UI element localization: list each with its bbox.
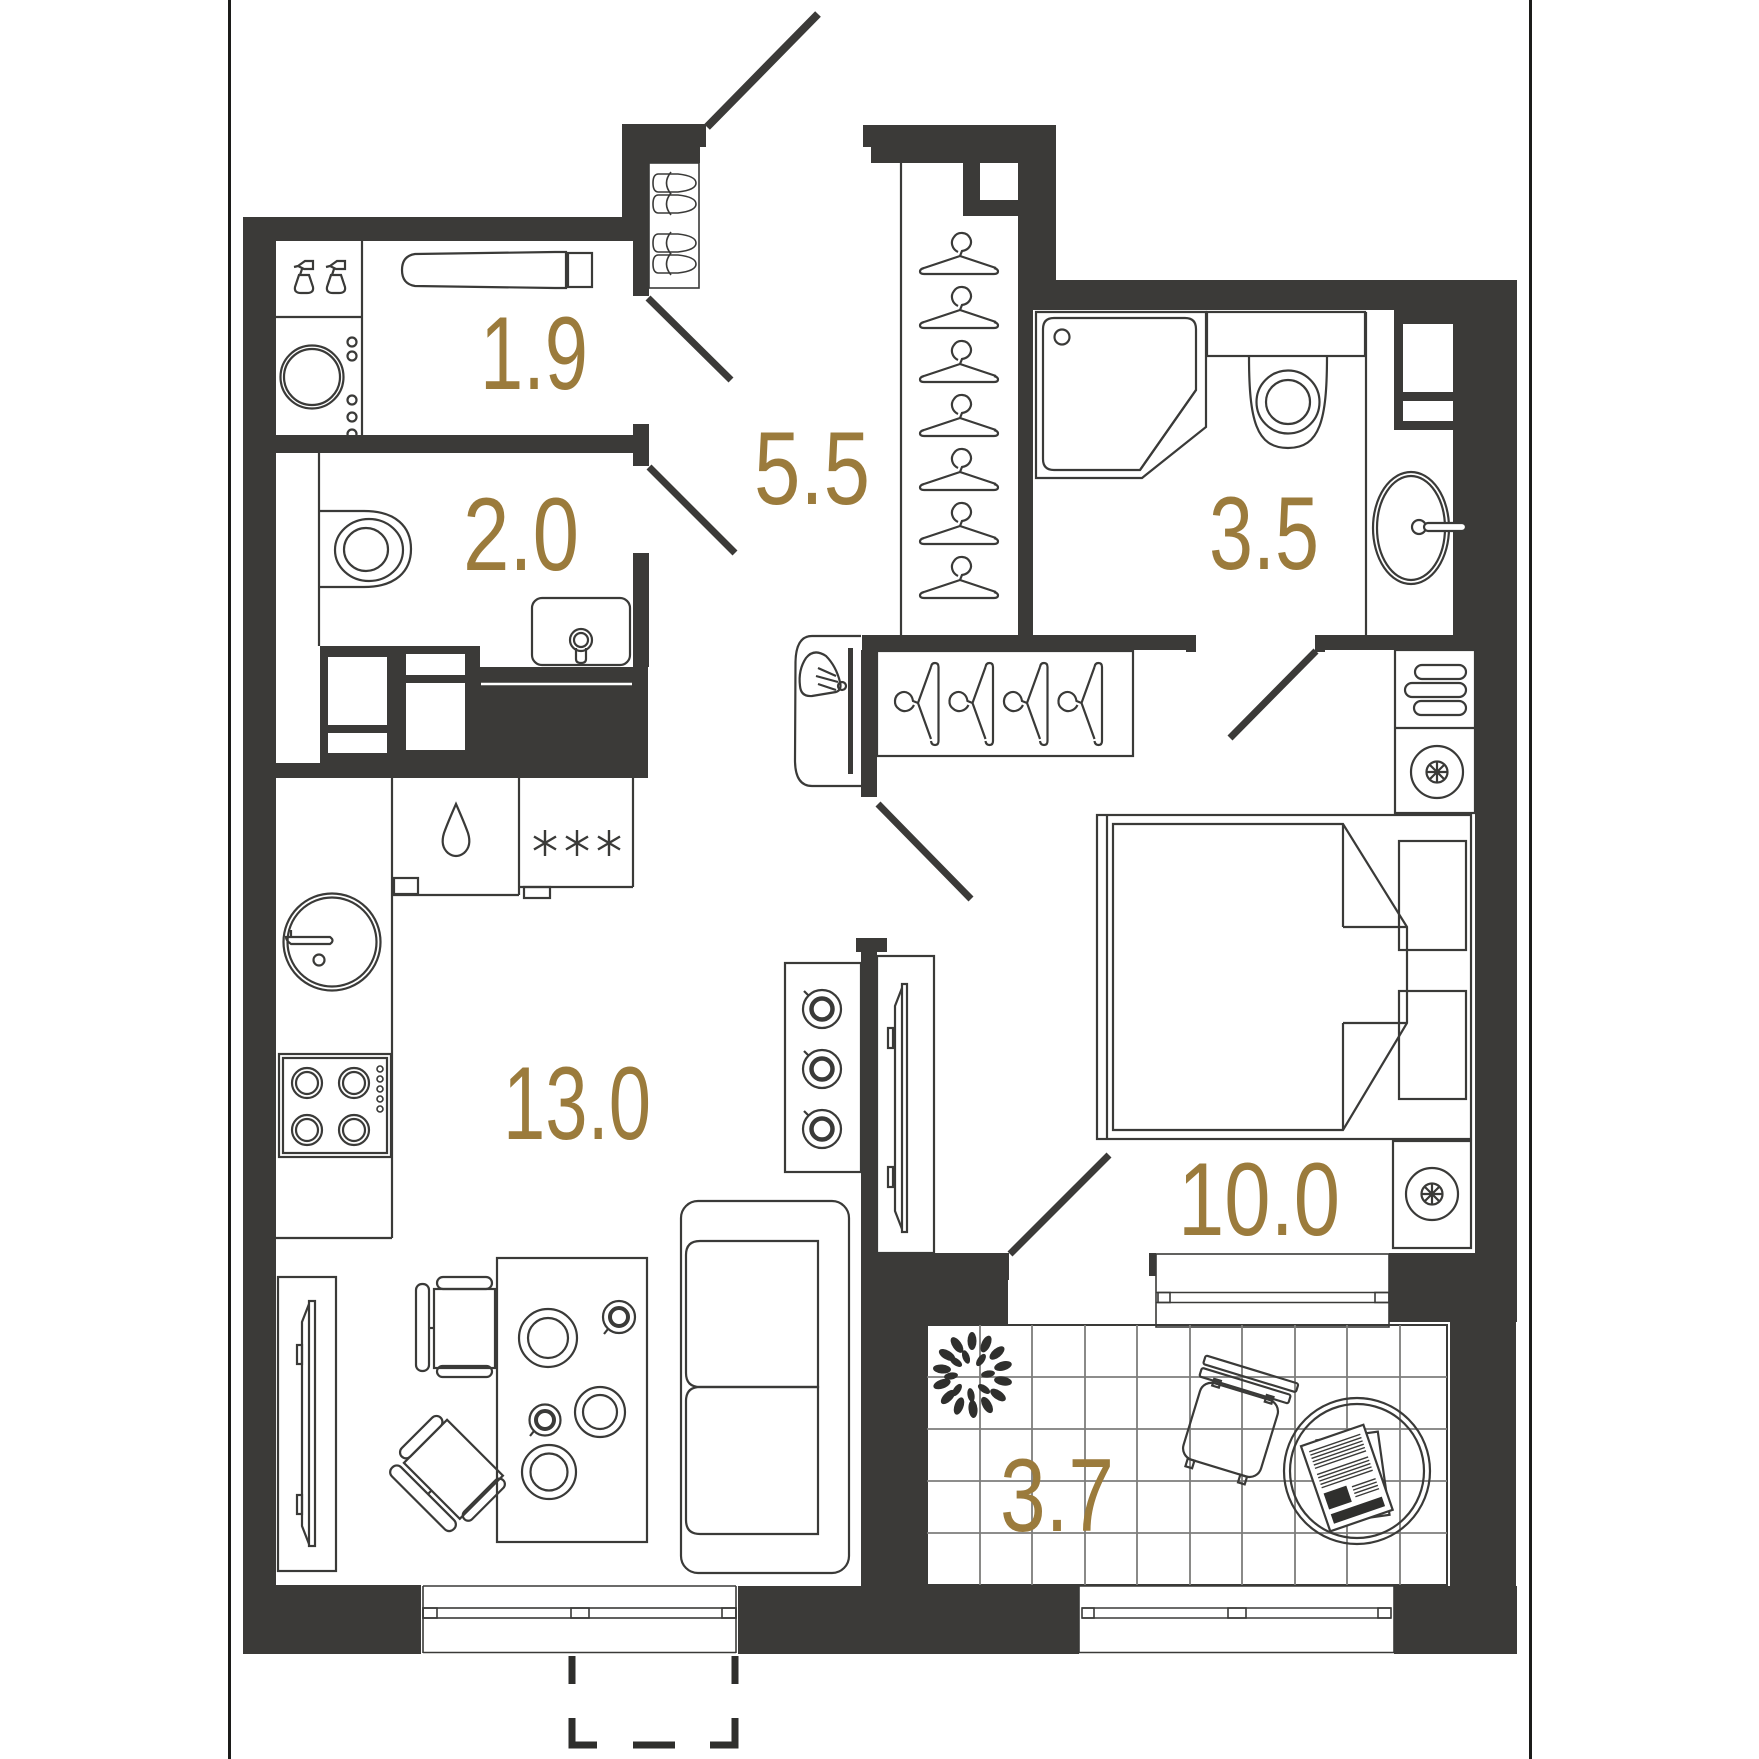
svg-text:3.5: 3.5 <box>1209 476 1319 592</box>
svg-text:1.9: 1.9 <box>480 296 588 412</box>
svg-text:3.7: 3.7 <box>1000 1438 1114 1554</box>
svg-text:2.0: 2.0 <box>463 477 579 593</box>
svg-text:5.5: 5.5 <box>754 411 870 527</box>
svg-text:10.0: 10.0 <box>1178 1142 1340 1258</box>
svg-text:13.0: 13.0 <box>503 1046 651 1162</box>
